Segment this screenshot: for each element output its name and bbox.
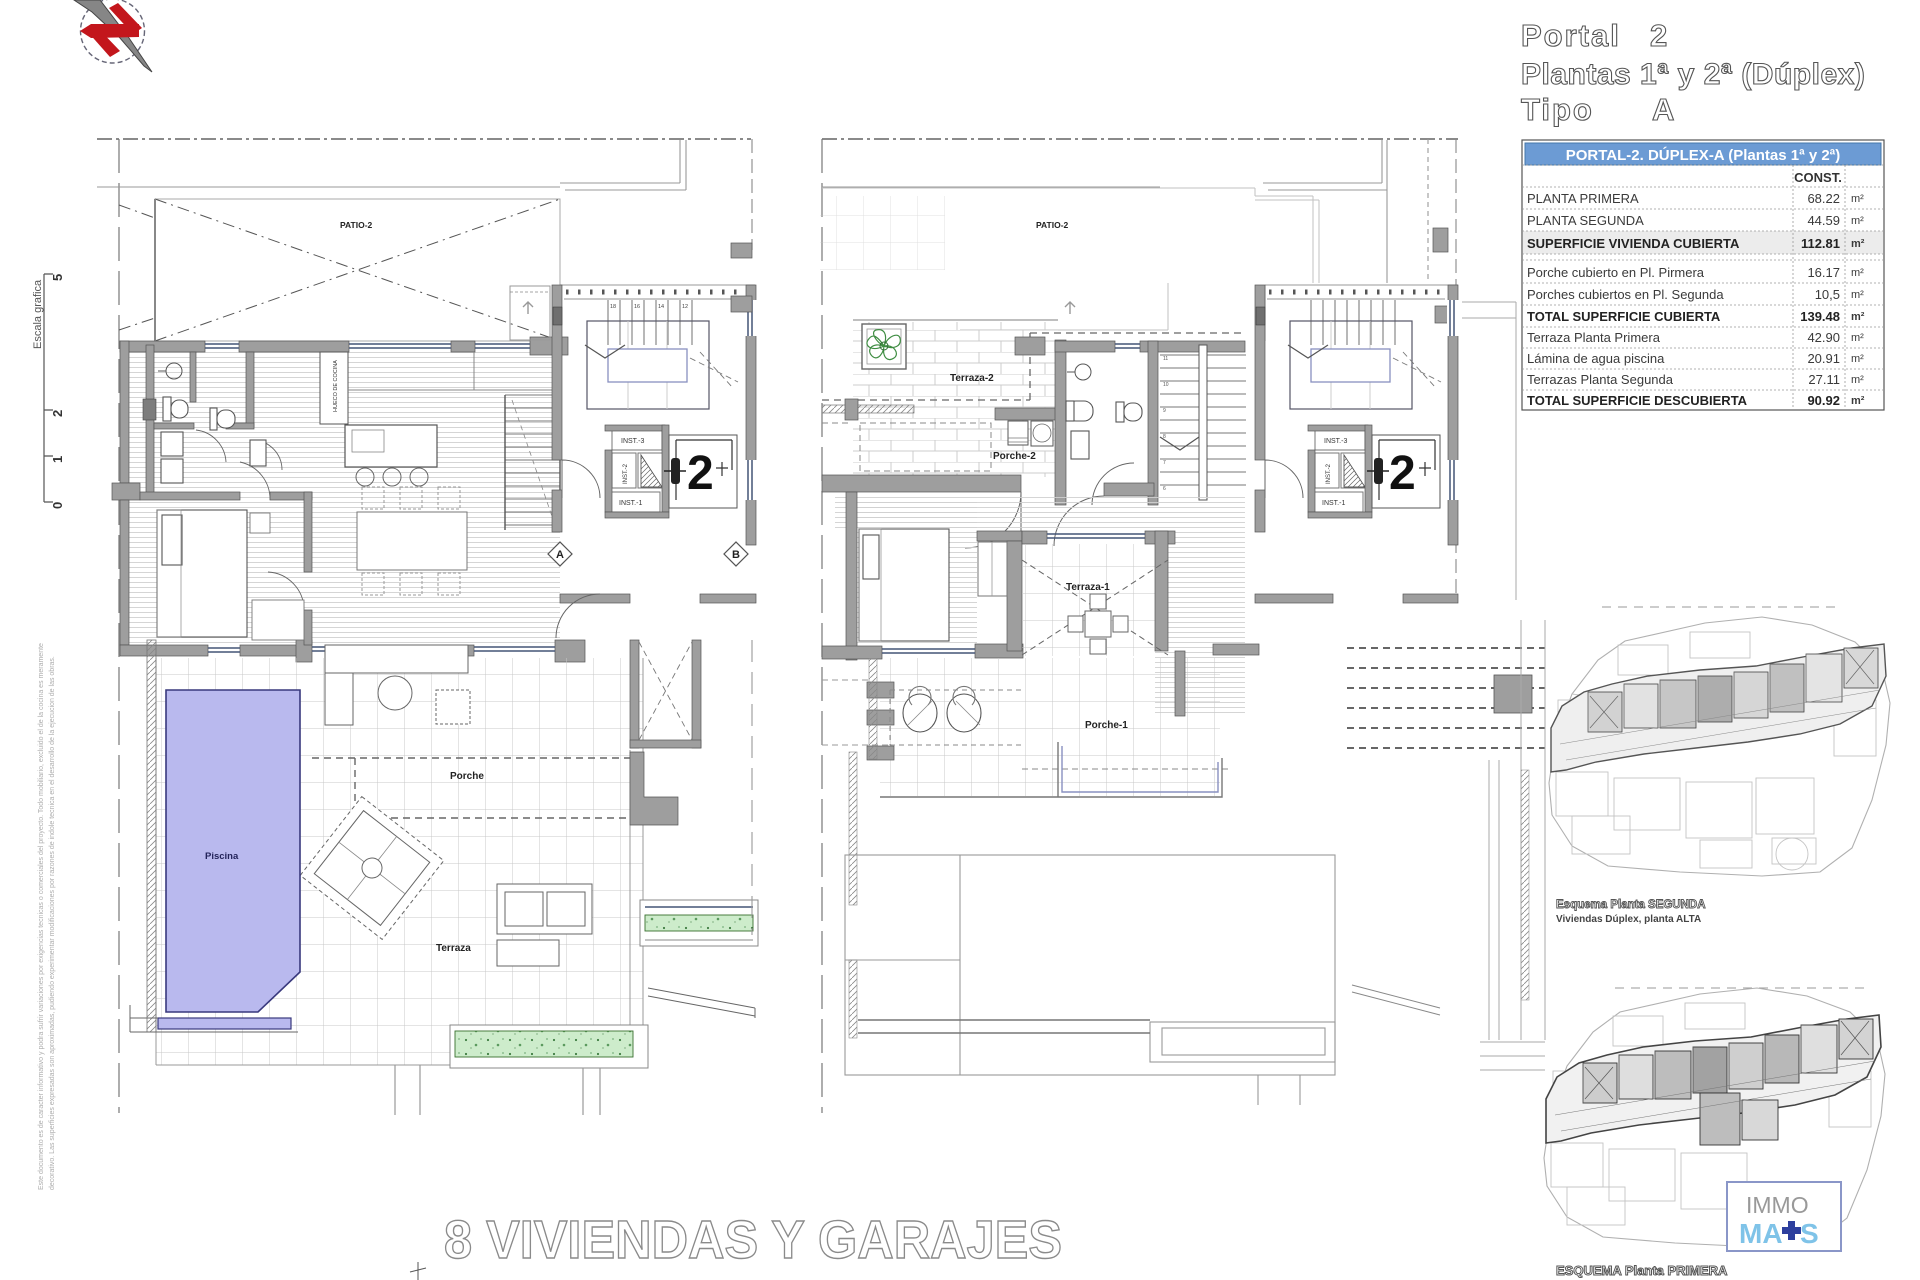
svg-text:m²: m² [1851,395,1865,407]
svg-text:12: 12 [682,304,688,310]
svg-text:14: 14 [658,304,664,310]
svg-text:PATIO-2: PATIO-2 [340,220,373,230]
svg-text:16: 16 [634,304,640,310]
svg-text:INST.-3: INST.-3 [1324,438,1347,445]
svg-text:Porche-1: Porche-1 [1085,720,1128,731]
svg-text:7: 7 [1163,460,1166,466]
svg-text:6: 6 [1163,486,1166,492]
svg-text:B: B [732,549,740,561]
svg-text:44.59: 44.59 [1807,213,1840,228]
svg-text:Porches cubiertos en Pl. Segun: Porches cubiertos en Pl. Segunda [1527,287,1724,302]
svg-text:INST.-3: INST.-3 [621,438,644,445]
svg-text:2: 2 [1389,447,1416,500]
svg-text:5: 5 [50,274,65,281]
svg-text:Tipo: Tipo [1521,92,1594,127]
svg-text:INST.-2: INST.-2 [1326,463,1332,484]
svg-text:27.11: 27.11 [1808,372,1840,387]
svg-text:Portal: Portal [1521,18,1621,53]
svg-text:11: 11 [1163,356,1168,362]
svg-text:0: 0 [50,502,65,509]
svg-text:TOTAL SUPERFICIE CUBIERTA: TOTAL SUPERFICIE CUBIERTA [1527,309,1721,324]
svg-text:Terraza Planta Primera: Terraza Planta Primera [1527,330,1661,345]
svg-text:20.91: 20.91 [1807,351,1840,366]
svg-text:PLANTA PRIMERA Y SEGUNDA: PLANTA PRIMERA Y SEGUNDA [450,1274,990,1280]
svg-text:18: 18 [610,304,616,310]
svg-text:Esquema Planta SEGUNDA: Esquema Planta SEGUNDA [1556,899,1706,911]
svg-text:10: 10 [1163,382,1169,388]
svg-text:m²: m² [1851,267,1864,279]
svg-text:m²: m² [1851,215,1864,227]
svg-text:112.81: 112.81 [1801,236,1840,251]
svg-text:PORTAL-2. DÚPLEX-A (Plantas 1ª: PORTAL-2. DÚPLEX-A (Plantas 1ª y 2ª) [1566,146,1840,164]
svg-text:A: A [556,549,564,561]
svg-text:A: A [1652,92,1676,127]
svg-text:1: 1 [50,456,65,463]
svg-text:2: 2 [1650,18,1669,53]
svg-text:16.17: 16.17 [1807,265,1840,280]
svg-text:Piscina: Piscina [205,851,239,862]
svg-text:m²: m² [1851,311,1865,323]
svg-text:INST.-1: INST.-1 [1322,500,1345,507]
svg-text:42.90: 42.90 [1807,330,1840,345]
svg-text:TOTAL SUPERFICIE DESCUBIERTA: TOTAL SUPERFICIE DESCUBIERTA [1527,393,1748,408]
svg-text:INST.-1: INST.-1 [619,500,642,507]
svg-text:Terraza-1: Terraza-1 [1066,582,1110,593]
svg-text:Terraza: Terraza [436,943,471,954]
svg-text:8 VIVIENDAS Y GARAJES: 8 VIVIENDAS Y GARAJES [444,1210,1062,1270]
svg-text:2: 2 [50,410,65,417]
svg-text:Lámina de agua piscina: Lámina de agua piscina [1527,351,1665,366]
svg-text:Porche cubierto en Pl. Pirmera: Porche cubierto en Pl. Pirmera [1527,265,1705,280]
svg-text:2: 2 [687,447,714,500]
svg-text:SUPERFICIE VIVIENDA CUBIERTA: SUPERFICIE VIVIENDA CUBIERTA [1527,236,1740,251]
svg-text:PLANTA SEGUNDA: PLANTA SEGUNDA [1527,213,1644,228]
svg-text:HUECO DE COCINA: HUECO DE COCINA [333,360,339,412]
svg-text:Terraza-2: Terraza-2 [950,373,994,384]
svg-text:m²: m² [1851,238,1865,250]
svg-text:Porche-2: Porche-2 [993,451,1036,462]
svg-text:m²: m² [1851,374,1864,386]
svg-text:Este documento es de caracter: Este documento es de caracter informativ… [38,643,45,1190]
svg-text:PLANTA PRIMERA: PLANTA PRIMERA [1527,191,1639,206]
svg-text:PATIO-2: PATIO-2 [1036,220,1069,230]
svg-text:CONST.: CONST. [1794,170,1842,185]
svg-text:Escala grafica: Escala grafica [32,279,44,349]
svg-text:INST.-2: INST.-2 [623,463,629,484]
svg-text:m²: m² [1851,332,1864,344]
svg-text:m²: m² [1851,353,1864,365]
svg-text:68.22: 68.22 [1807,191,1840,206]
svg-text:Terrazas Planta Segunda: Terrazas Planta Segunda [1527,372,1674,387]
svg-text:S: S [1800,1218,1819,1249]
svg-text:Plantas 1ª y 2ª (Dúplex): Plantas 1ª y 2ª (Dúplex) [1521,58,1865,91]
svg-text:10,5: 10,5 [1815,287,1840,302]
svg-text:139.48: 139.48 [1800,309,1840,324]
svg-text:ESQUEMA Planta PRIMERA: ESQUEMA Planta PRIMERA [1556,1263,1728,1278]
svg-text:90.92: 90.92 [1807,393,1840,408]
svg-text:Porche: Porche [450,771,484,782]
svg-text:IMMO: IMMO [1746,1192,1809,1218]
svg-text:m²: m² [1851,193,1864,205]
svg-text:Viviendas Dúplex, planta ALTA: Viviendas Dúplex, planta ALTA [1556,914,1701,925]
svg-text:MA: MA [1739,1218,1783,1249]
svg-text:8: 8 [1163,434,1166,440]
svg-text:m²: m² [1851,289,1864,301]
svg-text:decorativo. Las superficies ex: decorativo. Las superficies expresadas s… [49,656,56,1190]
svg-text:9: 9 [1163,408,1166,414]
